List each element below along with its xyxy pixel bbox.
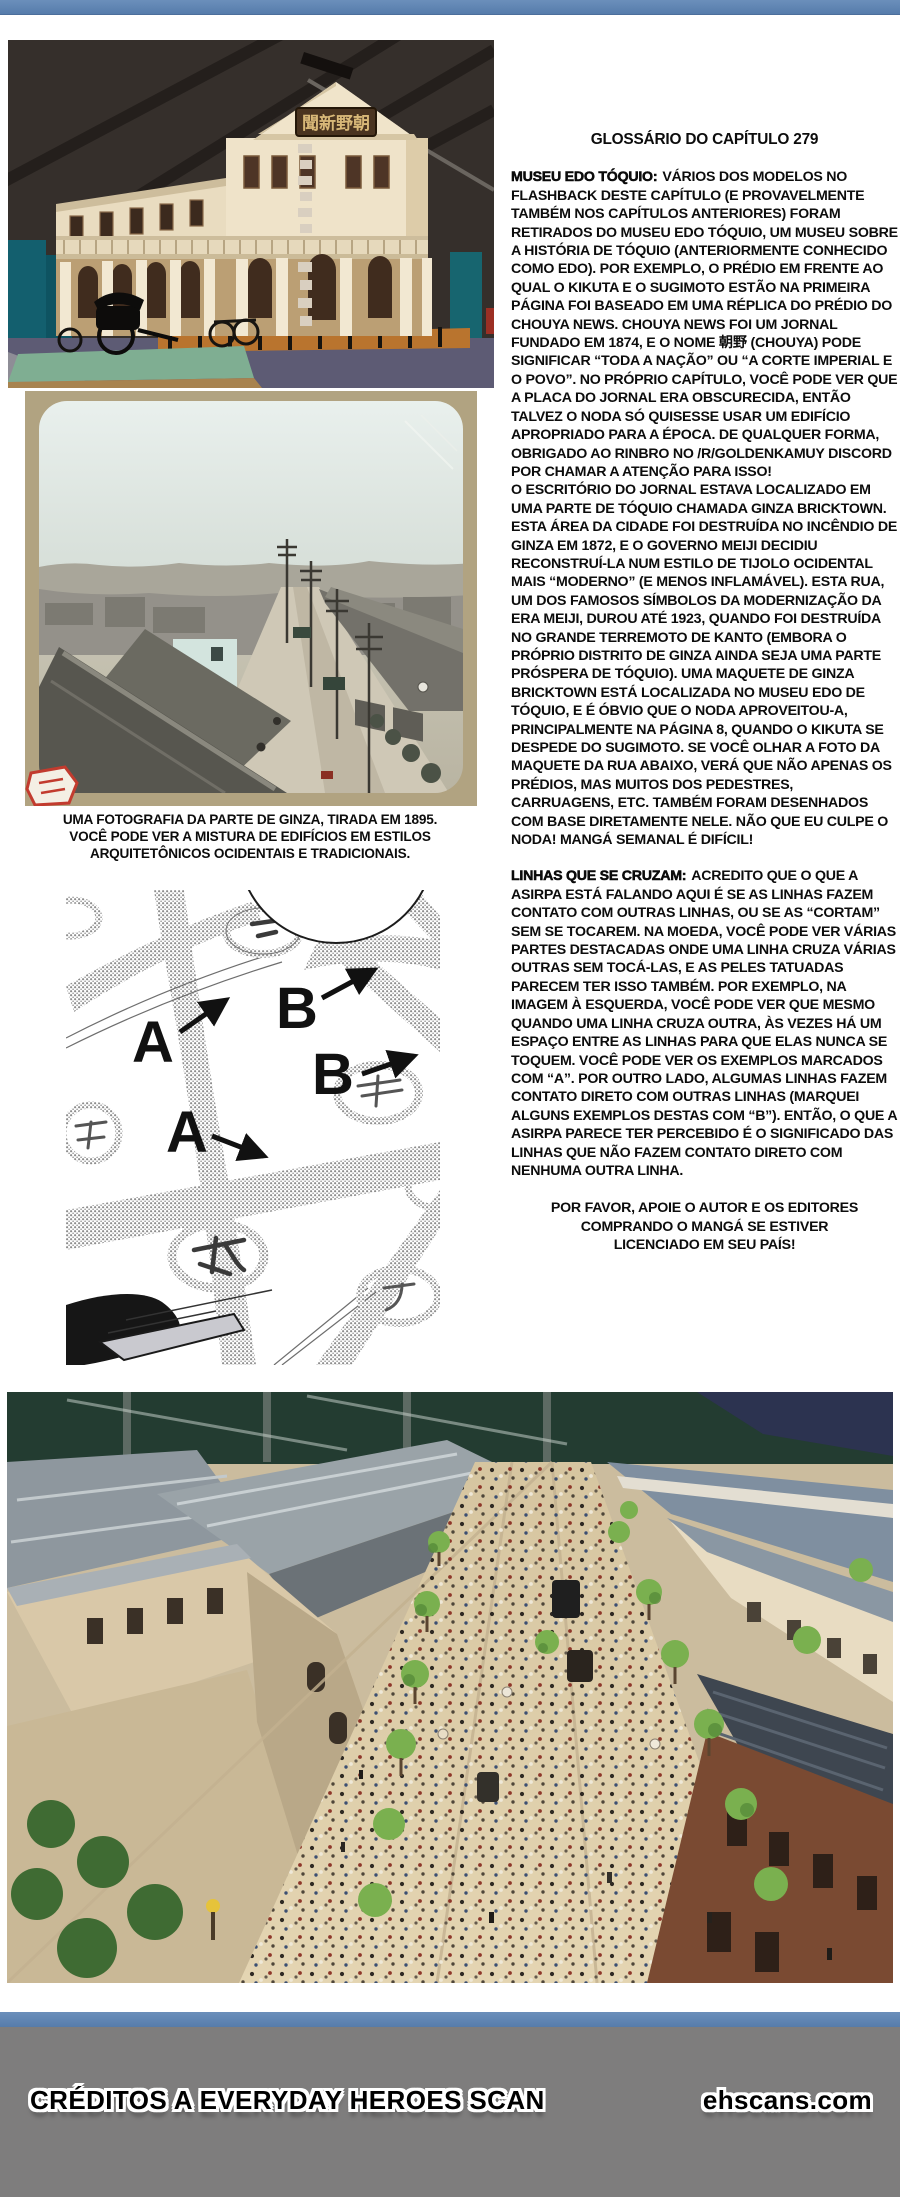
credits-text: CRÉDITOS A EVERYDAY HEROES SCAN bbox=[30, 2085, 545, 2116]
label-b-lower: B bbox=[312, 1042, 354, 1107]
museum-building-sign: 聞新野朝 bbox=[302, 113, 370, 133]
label-a-lower: A bbox=[166, 1100, 208, 1165]
ginza-1895-illustration bbox=[25, 391, 477, 806]
ginza-photo-caption: UMA FOTOGRAFIA DA PARTE DE GINZA, TIRADA… bbox=[50, 811, 450, 863]
glossary-entry-museu-cont: O ESCRITÓRIO DO JORNAL ESTAVA LOCALIZADO… bbox=[511, 481, 898, 849]
manga-panel-crossing-lines: A B B A bbox=[66, 890, 440, 1365]
glossary-entry-museu: MUSEU EDO TÓQUIO:VÁRIOS DOS MODELOS NO F… bbox=[511, 168, 898, 481]
glossary-entry-text: VÁRIOS DOS MODELOS NO FLASHBACK DESTE CA… bbox=[511, 169, 898, 480]
red-stamp bbox=[27, 767, 77, 805]
photo-museum-edo-tokyo-model: 聞新野朝 bbox=[8, 40, 494, 388]
glossary-column: GLOSSÁRIO DO CAPÍTULO 279 MUSEU EDO TÓQU… bbox=[511, 131, 898, 1255]
scanlation-glossary-page: { "colors": { "top_bar_blue": "#5e84b2",… bbox=[0, 0, 900, 2197]
photo-ginza-bricktown-maquette bbox=[7, 1392, 893, 1983]
glossary-entry-linhas: LINHAS QUE SE CRUZAM:ACREDITO QUE O QUE … bbox=[511, 867, 898, 1180]
label-a-upper: A bbox=[132, 1010, 174, 1075]
glossary-entry-text: ACREDITO QUE O QUE A ASIRPA ESTÁ FALANDO… bbox=[511, 868, 897, 1179]
museum-photo-illustration: 聞新野朝 bbox=[8, 40, 494, 388]
scan-group-site: ehscans.com bbox=[703, 2085, 872, 2116]
bricktown-model-illustration bbox=[7, 1392, 893, 1983]
glossary-term: LINHAS QUE SE CRUZAM: bbox=[511, 868, 686, 884]
photo-ginza-1895 bbox=[25, 391, 477, 806]
credits-footer: CRÉDITOS A EVERYDAY HEROES SCAN ehscans.… bbox=[0, 2027, 900, 2197]
top-accent-bar bbox=[0, 0, 900, 15]
bottom-accent-bar bbox=[0, 2012, 900, 2028]
glossary-term: MUSEU EDO TÓQUIO: bbox=[511, 169, 657, 185]
support-note: POR FAVOR, APOIE O AUTOR E OS EDITORES C… bbox=[511, 1199, 898, 1254]
label-b-upper: B bbox=[276, 976, 318, 1041]
glossary-title: GLOSSÁRIO DO CAPÍTULO 279 bbox=[511, 131, 898, 149]
manga-panel-illustration: A B B A bbox=[66, 890, 440, 1365]
